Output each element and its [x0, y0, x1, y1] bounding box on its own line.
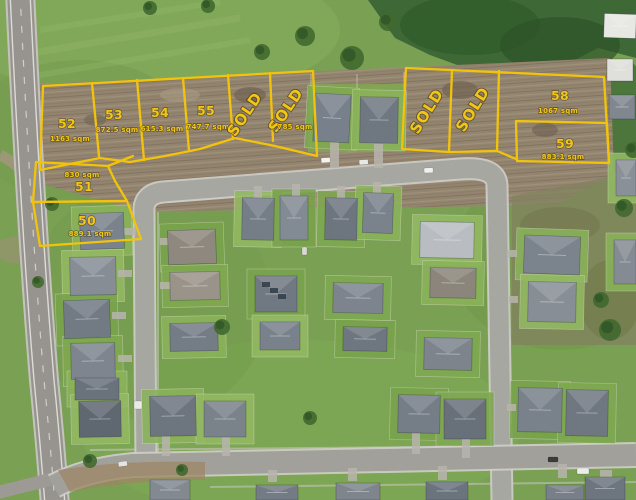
house	[256, 485, 298, 500]
house	[242, 198, 275, 241]
driveway	[374, 144, 383, 168]
house	[79, 401, 122, 438]
lot-55-number: 55	[197, 103, 215, 118]
aerial-subdivision-map: 52 1163 sqm 53 872.5 sqm 54 615.3 sqm 55…	[0, 0, 636, 500]
house	[170, 323, 218, 352]
lot-59-area: 883.1 sqm	[542, 153, 585, 161]
driveway	[330, 142, 339, 168]
house	[609, 95, 635, 119]
house	[398, 395, 441, 434]
house	[430, 268, 477, 299]
driveway	[558, 464, 567, 478]
house	[204, 401, 246, 437]
driveway	[337, 186, 345, 199]
house	[325, 198, 358, 241]
driveway	[507, 404, 516, 411]
house	[71, 343, 116, 380]
driveway	[254, 186, 262, 199]
house	[426, 482, 468, 500]
driveway	[118, 355, 132, 362]
house	[424, 338, 473, 371]
car	[424, 168, 433, 173]
house	[420, 222, 475, 259]
house	[75, 378, 119, 400]
house	[333, 283, 384, 314]
house	[518, 388, 563, 433]
house	[585, 477, 625, 500]
lot-58-area: 1067 sqm	[538, 107, 578, 115]
house	[260, 322, 300, 350]
house	[255, 276, 297, 312]
driveway	[118, 270, 132, 277]
lot-52-number: 52	[58, 116, 76, 131]
house	[343, 327, 387, 352]
house	[604, 13, 636, 38]
house	[280, 196, 308, 240]
house	[546, 485, 584, 500]
aerial-photo: 52 1163 sqm 53 872.5 sqm 54 615.3 sqm 55…	[0, 0, 636, 500]
house	[63, 299, 110, 339]
house	[70, 257, 117, 296]
lot-52-area: 1163 sqm	[50, 135, 90, 143]
lot-50-area: 889.1 sqm	[69, 230, 112, 238]
car	[302, 247, 307, 255]
house	[170, 272, 220, 301]
sold-2-area: 785 sqm	[278, 123, 313, 131]
driveway	[292, 184, 300, 197]
lot-51-area: 830 sqm	[65, 171, 100, 179]
driveway	[508, 250, 517, 257]
house	[167, 229, 216, 265]
lot-50-number: 50	[78, 213, 96, 228]
driveway	[268, 470, 277, 482]
lot-51-number: 51	[75, 179, 93, 194]
driveway	[348, 468, 357, 481]
house	[523, 235, 580, 275]
driveway	[160, 282, 170, 289]
house	[566, 390, 609, 437]
house	[444, 399, 486, 439]
car	[577, 468, 589, 474]
house	[336, 483, 380, 500]
house	[150, 480, 190, 500]
house	[150, 396, 197, 437]
lot-53-number: 53	[105, 107, 123, 122]
car	[548, 457, 558, 462]
lot-53-area: 872.5 sqm	[96, 126, 139, 134]
lot-54-area: 615.3 sqm	[141, 125, 184, 133]
driveway	[509, 296, 518, 303]
lot-59-number: 59	[556, 136, 574, 151]
car	[321, 157, 330, 163]
house	[616, 160, 636, 196]
house	[607, 59, 633, 81]
lot-54-number: 54	[151, 105, 169, 120]
car	[118, 461, 128, 467]
lot-58-number: 58	[551, 88, 569, 103]
house	[362, 192, 393, 233]
house	[360, 97, 399, 144]
house	[528, 282, 577, 323]
house	[614, 240, 636, 284]
driveway	[373, 182, 381, 194]
house	[313, 93, 351, 143]
car	[359, 159, 368, 165]
driveway	[112, 312, 126, 319]
driveway	[438, 466, 447, 480]
car	[134, 401, 142, 409]
